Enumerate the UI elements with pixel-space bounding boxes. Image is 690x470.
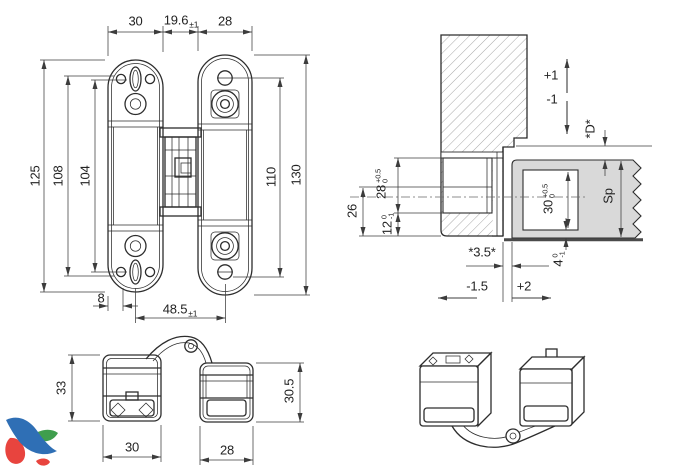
hinge-linkage (160, 128, 201, 216)
installation-section-view (350, 35, 652, 240)
hinge-perspective-view (420, 349, 584, 447)
watermark-logo: MADE ITALY GROUP идеи воплощённые в жизн… (0, 404, 400, 470)
logo-icon (0, 406, 60, 470)
hinge-front-view (108, 55, 252, 295)
technical-drawing (0, 0, 690, 470)
jamb-recess (523, 170, 578, 230)
technical-drawing-page: 30 19.6±1 28 125 108 104 110 130 8 48.5±… (0, 0, 690, 470)
